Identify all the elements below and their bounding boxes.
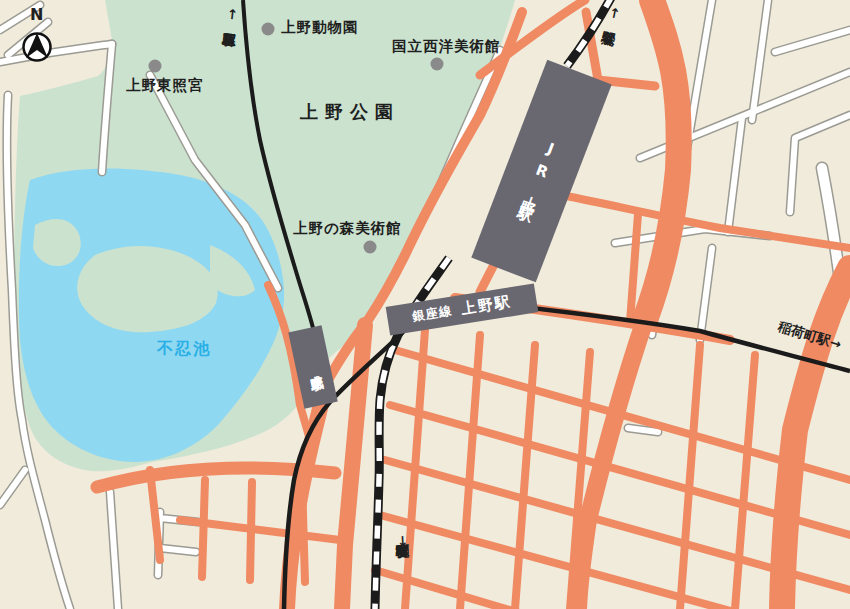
poi-label-ueno-zoo: 上野動物園 <box>281 19 359 36</box>
uguisudani-direction-label: ↑鶯谷駅 <box>605 4 624 23</box>
poi-label-mori-museum: 上野の森美術館 <box>293 220 402 237</box>
poi-dot-mori-museum <box>364 241 377 254</box>
ginza-station-name: 上野駅 <box>460 292 513 319</box>
compass-icon <box>24 33 51 61</box>
jr-ueno-station-label: JR上野駅 <box>521 137 562 205</box>
poi-dot-toshogu <box>149 60 162 73</box>
okachimachi-direction-label: 御徒町駅↓ <box>394 533 410 550</box>
ueno-park-label: 上野公園 <box>300 102 400 123</box>
ueno-area-map: JR上野駅 銀座線 上野駅 京成上野駅 N ↑日暮里駅 上野動物園 国立西洋美術… <box>0 0 850 609</box>
keisei-ueno-station-label: 京成上野駅 <box>304 363 322 371</box>
poi-label-seiyo-museum: 国立西洋美術館 <box>392 38 501 55</box>
poi-dot-ueno-zoo <box>262 23 275 36</box>
ginza-line-name: 銀座線 <box>411 303 454 326</box>
poi-label-toshogu: 上野東照宮 <box>126 77 204 94</box>
poi-dot-seiyo-museum <box>431 58 444 71</box>
shinobazu-pond-label: 不忍池 <box>157 340 211 358</box>
compass-north-label: N <box>30 6 43 24</box>
pond-island <box>33 219 81 266</box>
nippori-direction-label: ↑日暮里駅 <box>223 5 240 23</box>
